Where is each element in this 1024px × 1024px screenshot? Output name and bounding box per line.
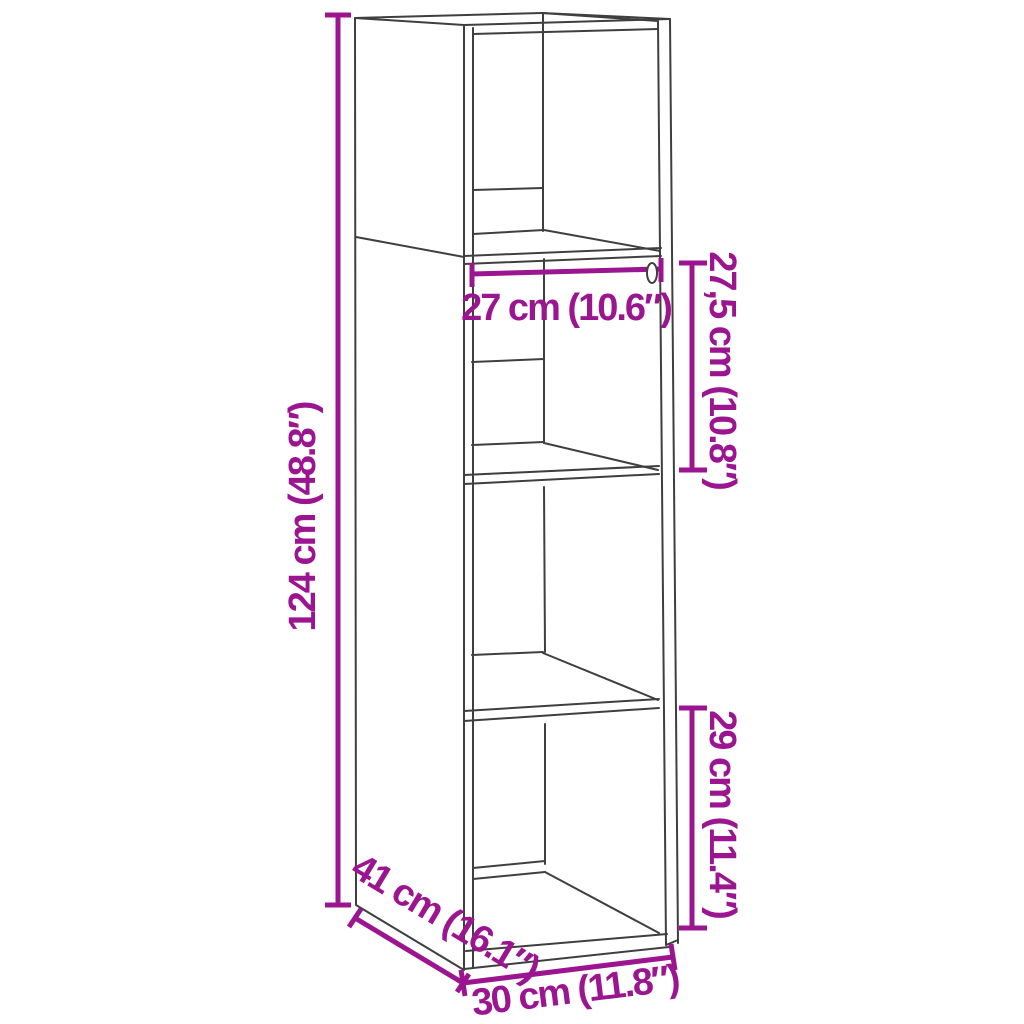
left-side-panel — [355, 18, 464, 970]
dimension-label-upper-compartment: 27,5 cm (10.8″) — [703, 251, 741, 488]
shelf-pin-hole — [647, 263, 657, 283]
front-right-inner-edge — [658, 22, 666, 945]
top-back-edge — [355, 13, 542, 18]
top-front-edge — [464, 19, 670, 25]
dimension-diagram-stage: 124 cm (48.8″) 27 cm (10.6″) 27,5 cm (10… — [0, 0, 1024, 1024]
cabinet-wireframe — [355, 13, 678, 970]
comp1-floor-back-edge — [473, 230, 544, 234]
shelf3-back-edge — [472, 652, 543, 655]
floor-right-edge — [545, 872, 659, 933]
front-right-outer-edge — [670, 19, 678, 943]
left-side-seam — [356, 237, 464, 257]
shelf3-right-edge — [543, 653, 658, 700]
dimension-label-inner-width: 27 cm (10.6″) — [461, 289, 671, 327]
shelf2-front-bottom — [464, 474, 659, 484]
height-dimension-line — [325, 15, 351, 905]
dimension-label-lower-compartment: 29 cm (11.4″) — [703, 710, 741, 918]
seam-front-top — [464, 248, 661, 256]
floor-back-edge — [473, 872, 545, 879]
back-panel-top-edge — [472, 359, 544, 362]
comp1-back-panel-bottom — [473, 188, 543, 190]
shelf2-front-top — [464, 466, 659, 475]
dimension-label-height: 124 cm (48.8″) — [284, 403, 322, 632]
cabinet-line-drawing — [0, 0, 1024, 1024]
seam-front-bottom — [464, 256, 661, 264]
interior-ceiling-edge — [473, 29, 658, 34]
floor-back-panel-bottom — [473, 861, 545, 868]
shelf2-back-edge — [472, 442, 544, 445]
comp3-back-right-corner — [544, 487, 545, 652]
